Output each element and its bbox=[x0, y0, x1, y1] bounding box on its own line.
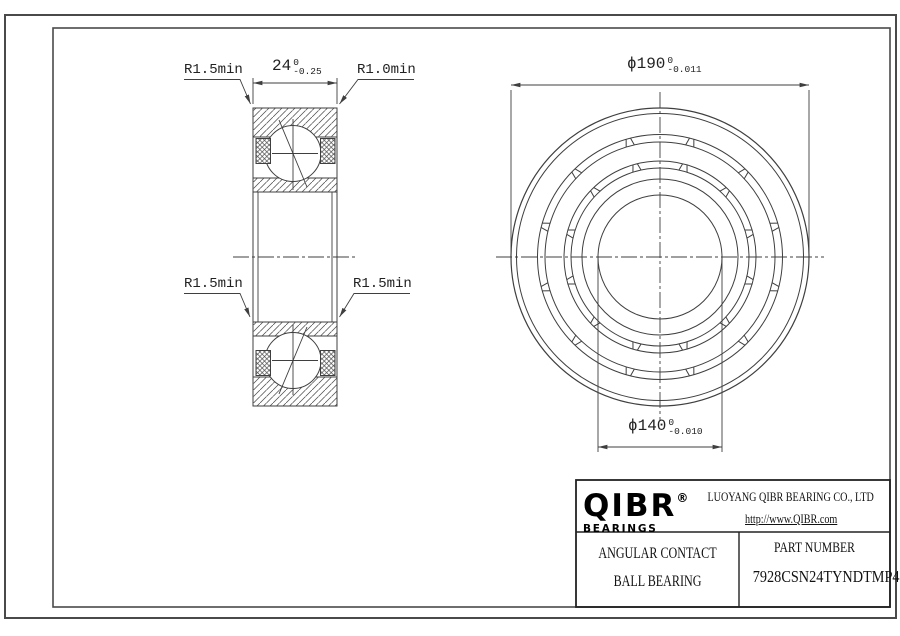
registered-trademark-icon: ® bbox=[676, 491, 688, 505]
radius-label-mid-right: R1.5min bbox=[353, 276, 412, 292]
part-number-value: 7928CSN24TYNDTMP4 bbox=[753, 567, 876, 587]
part-number-block: PART NUMBER 7928CSN24TYNDTMP4 bbox=[741, 540, 888, 587]
radius-label-top-left: R1.5min bbox=[184, 62, 243, 78]
company-website-link[interactable]: http://www.QIBR.com bbox=[696, 511, 886, 527]
brand-logo: QIBR® BEARINGS bbox=[583, 484, 688, 535]
front-view bbox=[496, 92, 824, 421]
company-name: LUOYANG QIBR BEARING CO., LTD bbox=[696, 489, 886, 505]
product-name-line1: ANGULAR CONTACT bbox=[595, 540, 719, 568]
section-view bbox=[233, 108, 357, 406]
part-number-label: PART NUMBER bbox=[757, 540, 872, 557]
bore-diameter-dimension: ϕ140 0 -0.010 bbox=[628, 418, 703, 436]
product-name-line2: BALL BEARING bbox=[595, 568, 719, 596]
brand-logo-text: QIBR® bbox=[583, 484, 688, 520]
width-value: 24 bbox=[272, 58, 291, 74]
outer-diameter-tolerance: 0 -0.011 bbox=[667, 56, 701, 74]
product-name: ANGULAR CONTACT BALL BEARING bbox=[578, 540, 737, 596]
engineering-drawing-sheet: R1.5min R1.0min R1.5min R1.5min 24 0 -0.… bbox=[0, 0, 900, 636]
brand-logo-subtext: BEARINGS bbox=[583, 523, 688, 535]
radius-label-top-right: R1.0min bbox=[357, 62, 416, 78]
width-dimension: 24 0 -0.25 bbox=[272, 58, 322, 76]
outer-diameter-dimension: ϕ190 0 -0.011 bbox=[627, 56, 702, 74]
bore-diameter-tolerance: 0 -0.010 bbox=[668, 418, 702, 436]
width-tolerance: 0 -0.25 bbox=[293, 58, 322, 76]
radius-label-mid-left: R1.5min bbox=[184, 276, 243, 292]
bore-diameter-value: ϕ140 bbox=[628, 418, 666, 434]
sheet-frame bbox=[5, 15, 896, 618]
outer-diameter-value: ϕ190 bbox=[627, 56, 665, 72]
